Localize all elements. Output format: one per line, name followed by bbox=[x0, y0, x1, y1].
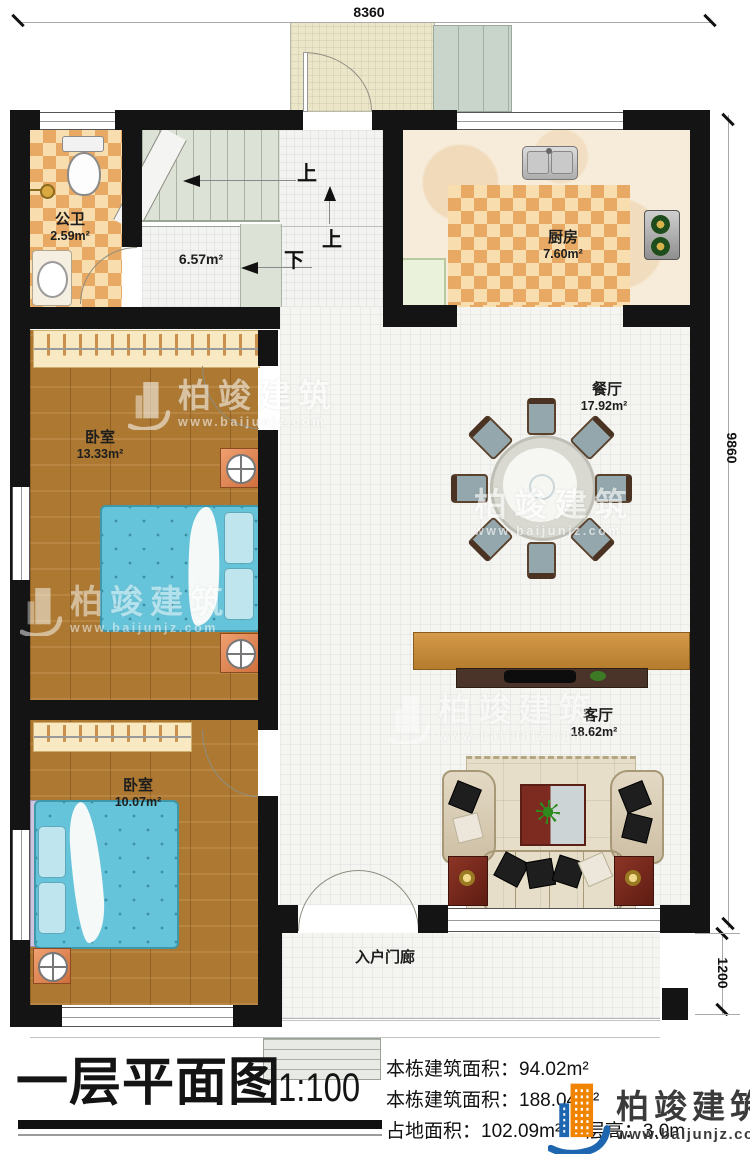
title-underline-thick bbox=[18, 1120, 382, 1129]
wall-bedroom1-right-a bbox=[258, 330, 278, 366]
wall-bedroom2-right-a bbox=[258, 720, 278, 730]
wall-top-1 bbox=[10, 110, 40, 130]
living-area: 18.62m² bbox=[556, 726, 632, 739]
wall-under-stairs bbox=[10, 307, 280, 329]
bedroom2-pillow2 bbox=[38, 882, 66, 934]
wall-porch-right-pier bbox=[662, 988, 688, 1020]
dim-top-value: 8360 bbox=[339, 4, 399, 20]
bedroom1-name: 卧室 bbox=[68, 430, 132, 445]
toilet-bowl bbox=[67, 152, 101, 196]
bath-sink-basin bbox=[37, 261, 68, 298]
bedroom1-wardrobe bbox=[33, 330, 260, 368]
kitchen-window bbox=[457, 112, 623, 130]
dim-right-value: 9860 bbox=[724, 426, 740, 470]
wall-kitchen-left bbox=[383, 130, 403, 327]
bathroom-area: 2.59m² bbox=[36, 230, 104, 243]
wall-kitchen-bottom-right bbox=[623, 305, 690, 327]
dining-name: 餐厅 bbox=[573, 382, 641, 397]
wall-bedroom2-bottom-b bbox=[233, 1005, 260, 1027]
towel-hook-bar bbox=[30, 189, 42, 191]
floor-plan: 上 上 下 6.57m² bbox=[0, 0, 750, 1165]
bedroom1-window bbox=[12, 487, 30, 580]
terrace-door-leaf bbox=[303, 52, 308, 112]
bedroom2-area: 10.07m² bbox=[100, 796, 176, 809]
dining-chair-n bbox=[527, 398, 556, 435]
stat-label: 本栋建筑面积： bbox=[386, 1059, 519, 1080]
dim-ext-line-b bbox=[695, 1014, 740, 1015]
side-table-left-medallion bbox=[459, 870, 475, 886]
coffee-table-plant bbox=[536, 800, 560, 824]
dining-area: 17.92m² bbox=[566, 400, 642, 413]
company-logo-icon bbox=[548, 1078, 610, 1154]
tv-plant bbox=[590, 671, 606, 681]
dim-right-line bbox=[728, 115, 729, 928]
kitchen-sink-basin-right bbox=[551, 151, 573, 174]
dining-chair-s bbox=[527, 542, 556, 579]
wall-top-2 bbox=[115, 110, 303, 130]
wall-porch-left bbox=[258, 905, 282, 1027]
toilet-tank bbox=[62, 136, 104, 152]
bedroom2-wardrobe bbox=[33, 722, 192, 752]
wall-bedroom2-right-b bbox=[258, 796, 278, 907]
stair-hall-area: 6.57m² bbox=[166, 252, 236, 266]
bedroom2-side-window bbox=[12, 830, 30, 940]
entry-guide-line bbox=[280, 226, 390, 227]
up-arrowhead-left bbox=[183, 175, 200, 187]
wall-kitchen-bottom-left bbox=[383, 305, 457, 327]
living-name: 客厅 bbox=[570, 708, 626, 723]
wall-living-bottom-b bbox=[418, 905, 448, 933]
plan-scale: 1:100 bbox=[278, 1066, 360, 1111]
wall-right bbox=[690, 110, 710, 933]
bathroom-window bbox=[40, 112, 115, 130]
bedroom1-pillow2 bbox=[224, 568, 254, 620]
dim-top-tick-left bbox=[11, 14, 24, 27]
wall-bedroom-divider bbox=[30, 700, 278, 720]
bedroom1-area: 13.33m² bbox=[60, 448, 140, 461]
porch-name: 入户门廊 bbox=[345, 950, 425, 965]
tv-console-bar bbox=[413, 632, 690, 670]
bedroom2-name: 卧室 bbox=[106, 778, 170, 793]
kitchen-area: 7.60m² bbox=[530, 248, 596, 261]
stove-burner-top bbox=[651, 215, 670, 234]
terrace-side-panel bbox=[433, 25, 512, 112]
stair-up-label-b: 上 bbox=[322, 230, 342, 250]
dim-ext-line-a bbox=[695, 933, 740, 934]
dining-chair-w bbox=[451, 474, 488, 503]
bedroom1-lamp-bottom bbox=[226, 639, 256, 669]
wall-bedroom2-bottom-a bbox=[10, 1005, 62, 1027]
dim-porch-value: 1200 bbox=[715, 953, 731, 993]
side-table-right-medallion bbox=[625, 870, 641, 886]
down-arrowhead-left bbox=[241, 262, 258, 274]
porch-floor bbox=[282, 933, 660, 1019]
entry-arrow-line bbox=[329, 198, 330, 224]
dim-top-line bbox=[18, 22, 712, 23]
entry-arrowhead-up bbox=[324, 186, 336, 201]
dining-table-center bbox=[529, 474, 555, 500]
stat-value: 94.02m² bbox=[519, 1059, 589, 1080]
kitchen-faucet bbox=[546, 148, 552, 154]
bedroom1-lamp-top bbox=[226, 454, 256, 484]
dining-chair-e bbox=[595, 474, 632, 503]
up-arrow-line bbox=[200, 180, 296, 181]
bedroom2-lamp bbox=[38, 952, 68, 982]
towel-hook bbox=[40, 184, 55, 199]
wall-bedroom1-right-b bbox=[258, 430, 278, 702]
kitchen-name: 厨房 bbox=[532, 230, 594, 245]
kitchen-mat bbox=[448, 185, 630, 305]
stat-label: 本栋建筑面积： bbox=[386, 1090, 519, 1111]
living-window bbox=[448, 908, 660, 932]
plan-title: 一层平面图 bbox=[16, 1052, 281, 1114]
stair-down-label: 下 bbox=[284, 251, 304, 271]
bathroom-name: 公卫 bbox=[40, 212, 100, 227]
stove-burner-bottom bbox=[651, 237, 670, 256]
bedroom1-pillow1 bbox=[224, 512, 254, 564]
kitchen-sink-basin-left bbox=[527, 151, 549, 174]
wall-bathroom-right bbox=[122, 130, 142, 247]
company-logo: 柏竣建筑 www.baijunjz.com bbox=[548, 1078, 750, 1154]
bedroom2-bottom-window bbox=[62, 1007, 233, 1027]
dim-top-tick-right bbox=[703, 14, 716, 27]
tv bbox=[504, 670, 576, 683]
wall-living-bottom-a bbox=[282, 905, 298, 933]
stair-up-label-a: 上 bbox=[297, 164, 317, 184]
company-logo-url: www.baijunjz.com bbox=[616, 1127, 750, 1142]
title-underline-thin bbox=[18, 1134, 382, 1136]
sofa-main-pillow2 bbox=[525, 858, 556, 889]
company-logo-brand: 柏竣建筑 bbox=[616, 1090, 750, 1123]
stat-label: 占地面积： bbox=[386, 1121, 481, 1142]
bedroom2-pillow1 bbox=[38, 826, 66, 878]
wall-top-3 bbox=[372, 110, 457, 130]
wall-living-bottom-c bbox=[660, 905, 693, 933]
